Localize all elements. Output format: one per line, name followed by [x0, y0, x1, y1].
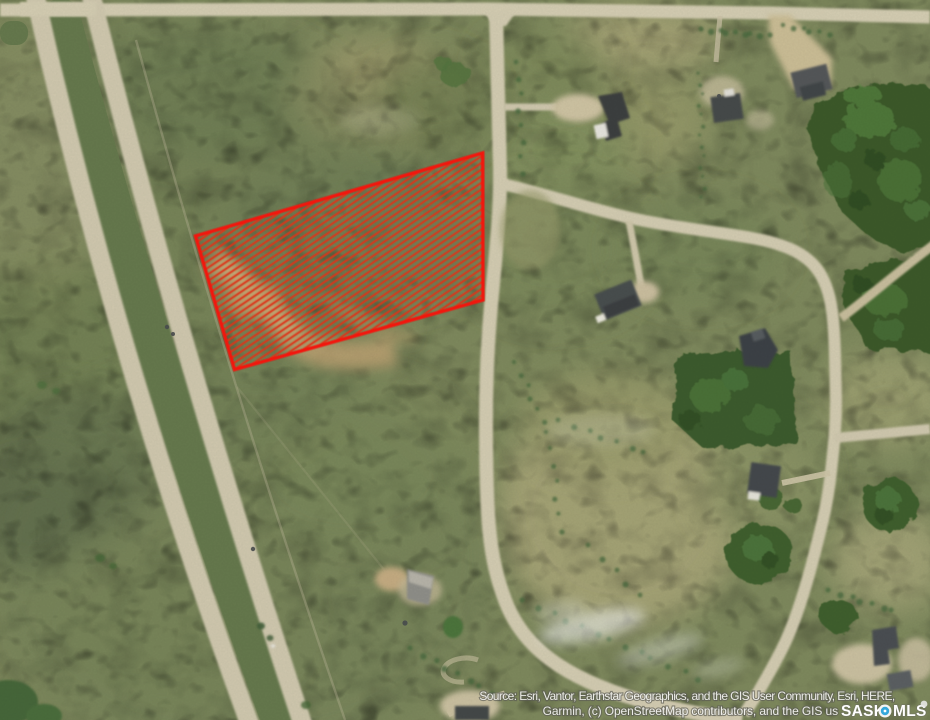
- svg-text:Garmin, (c) OpenStreetMap cont: Garmin, (c) OpenStreetMap contributors, …: [543, 704, 838, 718]
- svg-text:Source: Esri, Vantor, Earthsta: Source: Esri, Vantor, Earthstar Geograph…: [479, 689, 895, 703]
